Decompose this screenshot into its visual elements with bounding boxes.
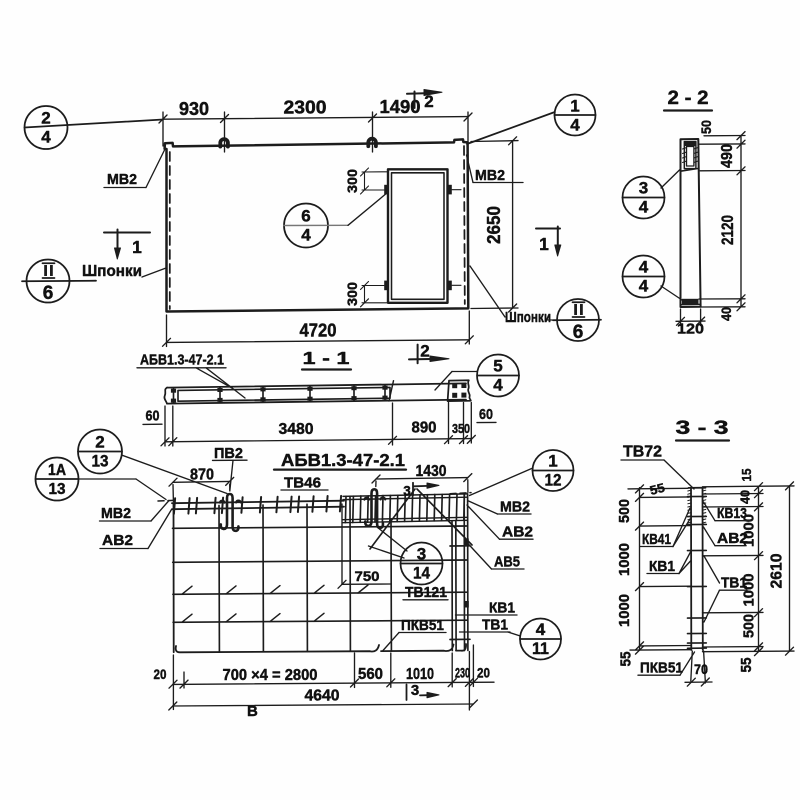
svg-text:50: 50: [698, 120, 714, 134]
svg-text:500: 500: [741, 614, 758, 638]
svg-text:МВ2: МВ2: [101, 505, 131, 522]
svg-text:4: 4: [493, 376, 503, 395]
svg-text:1010: 1010: [406, 666, 434, 683]
svg-text:КВ13: КВ13: [717, 505, 747, 522]
svg-text:Шпонки: Шпонки: [82, 263, 142, 280]
svg-text:2120: 2120: [719, 215, 737, 245]
svg-text:Шпонки: Шпонки: [505, 310, 551, 326]
svg-text:КВ1: КВ1: [649, 558, 675, 575]
svg-text:1: 1: [570, 97, 579, 116]
svg-text:4720: 4720: [300, 321, 337, 341]
svg-text:6: 6: [43, 283, 54, 304]
svg-text:13: 13: [92, 452, 109, 471]
svg-text:14: 14: [413, 564, 430, 583]
svg-text:20: 20: [154, 666, 167, 682]
svg-text:5: 5: [493, 357, 502, 376]
svg-text:300: 300: [345, 169, 360, 193]
svg-text:2610: 2610: [769, 554, 786, 589]
svg-text:1000: 1000: [616, 594, 633, 627]
svg-text:55: 55: [738, 658, 755, 673]
svg-text:АВ2: АВ2: [102, 532, 133, 549]
svg-text:2: 2: [424, 92, 433, 111]
svg-text:20: 20: [477, 665, 490, 681]
svg-text:60: 60: [479, 406, 493, 423]
svg-text:40: 40: [718, 307, 734, 321]
svg-text:6: 6: [573, 322, 584, 343]
svg-text:490: 490: [719, 144, 736, 168]
svg-text:300: 300: [345, 282, 360, 306]
svg-text:4: 4: [639, 277, 649, 296]
svg-text:500: 500: [616, 499, 633, 523]
svg-text:ПВ2: ПВ2: [214, 445, 243, 462]
svg-text:700 ×4 = 2800: 700 ×4 = 2800: [223, 667, 318, 684]
svg-text:КВ1: КВ1: [489, 600, 515, 617]
svg-text:2: 2: [420, 342, 429, 361]
svg-text:3: 3: [403, 484, 411, 499]
svg-text:120: 120: [677, 321, 704, 338]
svg-text:12: 12: [545, 471, 562, 490]
svg-text:11: 11: [532, 639, 549, 658]
svg-text:4640: 4640: [305, 688, 340, 705]
svg-text:6: 6: [301, 207, 310, 226]
svg-text:2: 2: [41, 109, 50, 128]
svg-text:1: 1: [132, 237, 142, 257]
svg-text:ТВ1: ТВ1: [721, 575, 747, 592]
svg-text:ТВ46: ТВ46: [284, 475, 321, 492]
svg-text:70: 70: [694, 661, 708, 677]
svg-text:МВ2: МВ2: [500, 499, 530, 516]
svg-text:55: 55: [648, 481, 666, 498]
svg-text:АВ5: АВ5: [494, 554, 520, 571]
svg-text:ТВ1: ТВ1: [482, 617, 508, 634]
svg-text:ПКВ51: ПКВ51: [401, 617, 444, 634]
svg-text:2 - 2: 2 - 2: [668, 88, 709, 109]
svg-text:МВ2: МВ2: [475, 167, 505, 184]
svg-text:4: 4: [41, 128, 51, 147]
svg-text:2: 2: [95, 433, 104, 452]
svg-text:2300: 2300: [284, 98, 327, 118]
svg-text:ТВ121: ТВ121: [405, 584, 447, 601]
svg-text:350: 350: [452, 421, 470, 436]
svg-text:3480: 3480: [279, 421, 314, 438]
svg-text:АБВ1.3-47-2.1: АБВ1.3-47-2.1: [281, 450, 405, 470]
svg-text:4: 4: [639, 198, 649, 217]
svg-text:750: 750: [355, 568, 380, 584]
svg-text:230: 230: [455, 666, 470, 681]
svg-text:АБВ1.3-47-2.1: АБВ1.3-47-2.1: [140, 352, 224, 369]
svg-text:1А: 1А: [48, 462, 66, 479]
svg-text:4: 4: [639, 258, 649, 277]
svg-text:АВ2: АВ2: [717, 530, 748, 547]
svg-text:1: 1: [539, 234, 549, 254]
svg-text:1: 1: [548, 452, 557, 471]
svg-text:60: 60: [146, 408, 160, 425]
svg-text:3: 3: [411, 682, 419, 699]
svg-text:15: 15: [739, 469, 754, 482]
svg-text:40: 40: [738, 490, 753, 504]
svg-text:КВ41: КВ41: [642, 531, 671, 548]
svg-text:930: 930: [179, 99, 209, 119]
svg-text:3: 3: [417, 545, 426, 564]
svg-text:890: 890: [412, 420, 437, 437]
svg-text:2650: 2650: [484, 206, 504, 244]
svg-text:АВ2: АВ2: [502, 524, 533, 541]
svg-text:1000: 1000: [616, 543, 633, 576]
svg-text:ПКВ51: ПКВ51: [640, 660, 683, 677]
svg-text:ТВ72: ТВ72: [623, 444, 662, 461]
svg-text:1 - 1: 1 - 1: [303, 348, 350, 368]
svg-text:55: 55: [618, 652, 635, 667]
svg-text:3 - 3: 3 - 3: [676, 418, 729, 439]
svg-text:4: 4: [536, 620, 546, 639]
svg-text:4: 4: [301, 226, 311, 245]
svg-text:МВ2: МВ2: [107, 171, 137, 188]
svg-text:560: 560: [358, 666, 383, 683]
svg-text:3: 3: [639, 179, 648, 198]
svg-text:4: 4: [570, 116, 580, 135]
svg-text:В: В: [247, 703, 258, 720]
svg-text:13: 13: [49, 481, 66, 498]
svg-text:1430: 1430: [416, 463, 447, 480]
